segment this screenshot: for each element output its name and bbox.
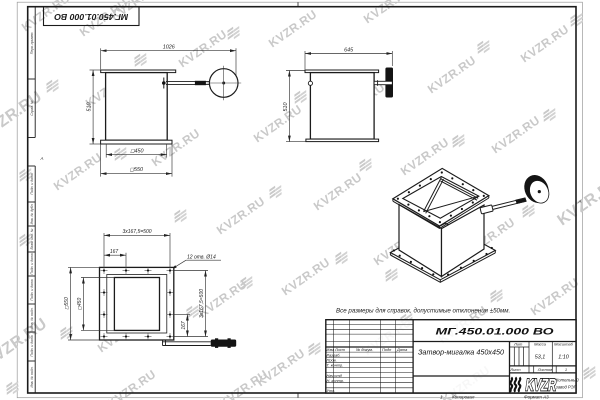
svg-text:Утв.: Утв. <box>327 388 336 393</box>
svg-text:Подп. и дата: Подп. и дата <box>30 335 34 356</box>
svg-text:Лист: Лист <box>509 367 521 372</box>
svg-text:12 отв. Ø14: 12 отв. Ø14 <box>187 255 216 261</box>
svg-text:МГ.450.01.000 ВО: МГ.450.01.000 ВО <box>436 326 555 337</box>
svg-text:Все размеры для справок, допус: Все размеры для справок, допустимые откл… <box>336 308 510 315</box>
svg-text:◻450: ◻450 <box>77 298 83 311</box>
svg-text:Справ. №: Справ. № <box>30 100 34 116</box>
svg-text:завод РЭП: завод РЭП <box>555 385 578 390</box>
svg-text:1026: 1026 <box>163 45 175 51</box>
svg-text:1:10: 1:10 <box>558 355 569 361</box>
svg-text:Н. контр.: Н. контр. <box>327 378 345 383</box>
svg-text:167: 167 <box>181 321 187 330</box>
svg-text:Инв. № подл.: Инв. № подл. <box>30 366 34 387</box>
svg-text:510: 510 <box>283 103 289 112</box>
svg-text:МГ.450.01.000 ВО: МГ.450.01.000 ВО <box>54 12 128 21</box>
svg-text:53,1: 53,1 <box>535 355 546 361</box>
svg-text:Лит: Лит <box>513 342 523 347</box>
svg-text:◻550: ◻550 <box>64 297 70 310</box>
svg-text:Инв. № дубл.: Инв. № дубл. <box>30 204 34 225</box>
svg-text:Листов: Листов <box>537 367 553 372</box>
svg-text:1: 1 <box>565 367 567 372</box>
svg-text:Копировал: Копировал <box>452 394 475 399</box>
svg-text:Подп. и дата: Подп. и дата <box>30 253 34 274</box>
svg-text:Формат А3: Формат А3 <box>524 394 549 399</box>
svg-text:Котельный: Котельный <box>556 378 579 383</box>
svg-text:Перв. примен.: Перв. примен. <box>30 32 34 55</box>
svg-text:Лист: Лист <box>334 347 346 352</box>
svg-text:Затвор-мигалка 450х450: Затвор-мигалка 450х450 <box>418 348 505 357</box>
svg-text:Масштаб: Масштаб <box>554 342 573 347</box>
svg-text:Т. контр.: Т. контр. <box>327 363 344 368</box>
svg-text:А: А <box>577 199 581 204</box>
svg-text:510: 510 <box>87 103 93 112</box>
svg-text:KVZR: KVZR <box>524 376 557 395</box>
svg-text:3х167,5=500: 3х167,5=500 <box>122 229 151 235</box>
svg-text:Инв. № подл.: Инв. № подл. <box>30 307 34 328</box>
svg-text:◻550: ◻550 <box>130 167 143 173</box>
svg-text:Дата: Дата <box>396 347 408 352</box>
svg-text:Подп. и дата: Подп. и дата <box>30 173 34 194</box>
svg-text:№ докум.: № докум. <box>356 347 373 352</box>
svg-text:А: А <box>39 156 43 161</box>
svg-text:3х167,5=500: 3х167,5=500 <box>199 289 205 318</box>
svg-text:167: 167 <box>110 249 119 255</box>
svg-text:Изм: Изм <box>327 347 335 352</box>
svg-text:◻450: ◻450 <box>130 148 143 154</box>
svg-text:645: 645 <box>344 47 354 53</box>
svg-text:Масса: Масса <box>534 342 547 347</box>
svg-text:Взам. инв. №: Взам. инв. № <box>30 228 34 249</box>
svg-text:Подп: Подп <box>382 347 392 352</box>
svg-text:Подп. и дата: Подп. и дата <box>30 279 34 300</box>
